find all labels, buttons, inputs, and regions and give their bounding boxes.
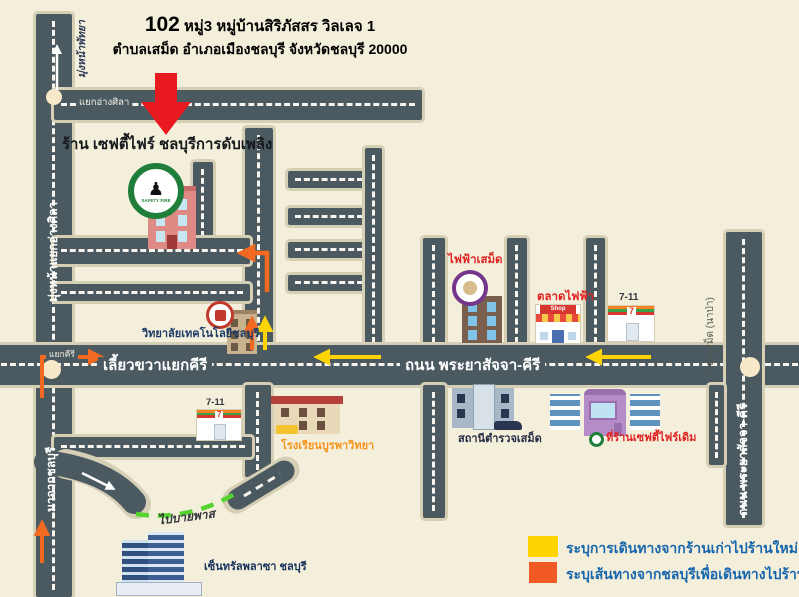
firefighter-figure-icon: ♟	[148, 180, 164, 198]
road-college-street	[54, 284, 250, 301]
power-office-logo-icon	[452, 270, 488, 306]
title-house-number: 102	[145, 13, 180, 36]
road-centerline	[257, 135, 260, 341]
seven-door	[626, 323, 639, 341]
shop-door	[167, 235, 177, 249]
safety-fire-logo-icon: ♟ SAFETY FIRE	[128, 163, 184, 219]
label-market: ตลาดไฟฟ้า	[537, 290, 594, 304]
label-heading-pattaya: มุ่งหน้าพัทยา	[76, 20, 89, 78]
label-seven-eleven-bottom: 7-11	[206, 397, 225, 409]
label-power-office: ไฟฟ้าเสม็ด	[448, 253, 503, 267]
junction-dot-right	[740, 357, 760, 377]
curve-direction-arrow	[82, 473, 112, 488]
old-shop-logo-icon	[589, 432, 604, 447]
road-centerline	[201, 169, 204, 237]
school-building	[274, 396, 340, 434]
old-shop-left-building	[550, 394, 580, 430]
road-centerline	[432, 245, 435, 343]
old-shop-window	[589, 401, 617, 420]
road-centerline	[715, 392, 718, 458]
road-shop-lane	[193, 162, 213, 244]
label-right-road-name: ถนน พระยาสัจจา-คีรี	[736, 403, 752, 516]
seven-logo-glyph: 7	[627, 307, 636, 316]
seven-door	[214, 424, 226, 440]
title-line1: 102 หมู่3 หมู่บ้านสิริภัสสร วิลเลจ 1	[90, 12, 430, 38]
road-centerline	[515, 245, 518, 343]
legend-orange-swatch	[529, 562, 557, 583]
road-stub-3	[288, 242, 370, 258]
market-windows	[540, 332, 548, 340]
junction-dot-angsila	[46, 89, 62, 105]
label-school: โรงเรียนบูรพาวิทยา	[281, 440, 374, 454]
label-right-road-note: แยกเสม็ด (นาป่า)	[705, 297, 718, 372]
legend-yellow-label: ระบุการเดินทางจากร้านเก่าไปร้านใหม่	[566, 538, 798, 560]
road-vstub-a	[423, 238, 445, 350]
road-centerline	[295, 178, 363, 181]
police-car-icon	[494, 421, 522, 430]
label-to-bypass: ไปบายพาส	[157, 507, 215, 529]
road-stub-1	[288, 171, 370, 188]
road-centerline	[295, 281, 363, 284]
label-police-station: สถานีตำรวจเสม็ด	[458, 433, 542, 447]
market-awning	[536, 314, 580, 322]
label-college: วิทยาลัยเทคโนโลยีชลบุรี	[142, 328, 259, 342]
college-logo-inner	[215, 310, 226, 321]
central-base	[116, 582, 202, 596]
curved-branch-casing	[66, 464, 136, 504]
seven-logo-glyph: 7	[215, 411, 223, 419]
road-stub-below-right	[709, 385, 724, 465]
title-line1-rest: หมู่3 หมู่บ้านสิริภัสสร วิลเลจ 1	[184, 18, 375, 35]
market-door	[552, 330, 564, 343]
road-side-lower	[245, 385, 271, 477]
old-shop-building	[584, 389, 626, 436]
old-shop-right-building	[630, 394, 660, 430]
power-logo-inner	[463, 281, 477, 295]
bypass-stub-centerline	[244, 474, 280, 496]
school-roof	[271, 396, 343, 404]
road-centerline	[295, 248, 363, 251]
legend-yellow-swatch	[528, 536, 558, 557]
title-line2: ตำบลเสม็ด อำเภอเมืองชลบุรี จังหวัดชลบุรี…	[90, 41, 430, 59]
road-below-main-vertical	[423, 385, 445, 518]
label-old-shop: ที่ร้านเซฟตี้ไฟร์เดิม	[606, 432, 696, 446]
title-block: 102 หมู่3 หมู่บ้านสิริภัสสร วิลเลจ 1 ตำบ…	[90, 12, 430, 59]
police-windows	[457, 394, 465, 403]
police-tower	[473, 384, 495, 430]
market-sign-text: Shop	[551, 306, 566, 312]
label-main-road-name: ถนน พระยาสัจจา-คีรี	[400, 357, 545, 376]
road-stub-4	[288, 275, 370, 291]
road-mid-vertical	[365, 148, 382, 350]
road-centerline	[61, 291, 243, 294]
label-central-plaza: เซ็นทรัลพลาซา ชลบุรี	[204, 561, 307, 575]
seven-eleven-bottom-building: 7	[196, 409, 242, 441]
label-turn-right-kiri: เลี้ยวขวาแยกคีรี	[98, 357, 212, 376]
label-junction-angsila: แยกอ่างศิลา	[76, 97, 132, 109]
central-plaza-building	[116, 532, 200, 596]
road-centerline	[256, 392, 259, 470]
police-station-building	[452, 388, 514, 428]
market-sign: Shop	[540, 305, 576, 314]
direction-map: 102 หมู่3 หมู่บ้านสิริภัสสร วิลเลจ 1 ตำบ…	[0, 0, 799, 597]
label-seven-eleven-top: 7-11	[619, 292, 638, 305]
label-heading-angsila: มุ่งหน้าแยกอ่างศิลา	[46, 202, 61, 302]
road-centerline	[372, 155, 375, 343]
legend-orange-label: ระบุเส้นทางจากชลบุรีเพื่อเดินทางไปร้านให…	[566, 564, 799, 586]
road-centerline	[295, 215, 363, 218]
logo-ring-text: SAFETY FIRE	[141, 198, 170, 203]
road-vstub-b	[507, 238, 527, 350]
road-centerline	[61, 249, 243, 252]
label-junction-kiri: แยกคีรี	[46, 349, 78, 360]
market-building: Shop	[535, 304, 581, 344]
seven-eleven-top-building: 7	[607, 305, 655, 342]
road-centerline	[432, 392, 435, 511]
road-centerline	[61, 445, 245, 448]
college-logo-icon	[206, 301, 234, 329]
school-bus-icon	[276, 425, 298, 434]
school-windows	[281, 408, 289, 417]
junction-dot-kiri	[42, 360, 61, 379]
label-from-chonburi: มาจากชลบุรี	[44, 447, 59, 512]
road-stub-2	[288, 208, 370, 225]
label-new-shop: ร้าน เซฟตี้ไฟร์ ชลบุรีการดับเพลิง	[62, 136, 272, 155]
